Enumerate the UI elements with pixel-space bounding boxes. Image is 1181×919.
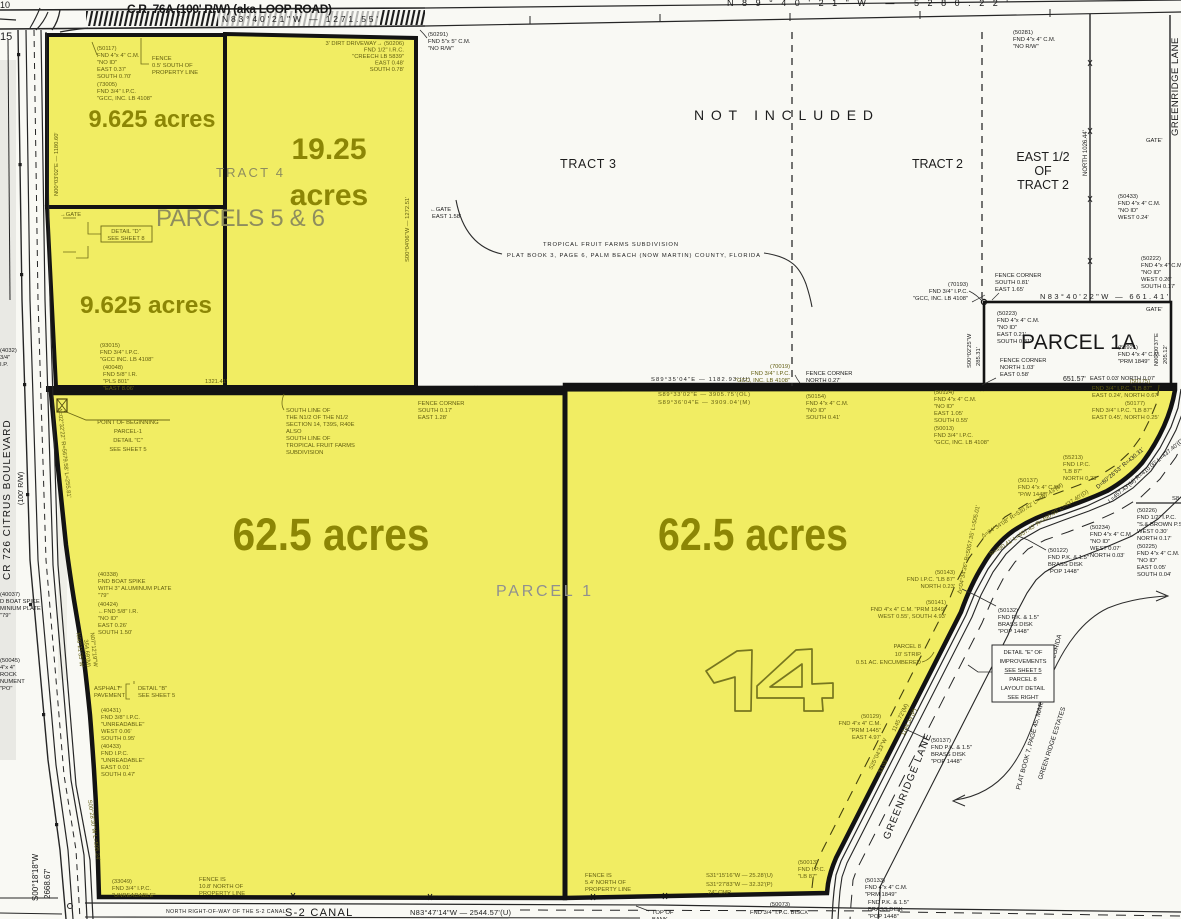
svg-text:205.12': 205.12'	[1163, 345, 1169, 364]
svg-text:1321.41': 1321.41'	[205, 379, 227, 385]
svg-text:FENCE IS: FENCE IS	[199, 877, 226, 883]
svg-text:FND 4"x 4" C.M.: FND 4"x 4" C.M.	[1118, 201, 1161, 207]
svg-text:S31°15'16"W — 25.28'(U): S31°15'16"W — 25.28'(U)	[706, 873, 773, 879]
svg-text:"NO ID": "NO ID"	[97, 60, 117, 66]
svg-text:SOUTH LINE OF: SOUTH LINE OF	[286, 436, 331, 442]
svg-text:"POP 1448": "POP 1448"	[998, 629, 1029, 635]
svg-text:EAST 0.26': EAST 0.26'	[98, 623, 127, 629]
svg-text:19.25: 19.25	[291, 133, 366, 166]
svg-text:FND 3/4" I.P.C.: FND 3/4" I.P.C.	[934, 433, 973, 439]
svg-text:←FND 5/8" I.R.: ←FND 5/8" I.R.	[98, 609, 138, 615]
svg-text:FND 3/4" I.P.C.: FND 3/4" I.P.C.	[100, 350, 139, 356]
svg-text:10' STRIP: 10' STRIP	[895, 652, 921, 658]
svg-text:OF: OF	[1034, 164, 1052, 178]
svg-text:BRASS DISK: BRASS DISK	[998, 622, 1033, 628]
svg-text:"S.& BROWN P.S.M.": "S.& BROWN P.S.M."	[1137, 522, 1181, 528]
svg-text:TOP OF: TOP OF	[652, 910, 674, 916]
svg-text:EAST 0.45', NORTH 0.25': EAST 0.45', NORTH 0.25'	[1092, 415, 1159, 421]
svg-text:(50137): (50137)	[1018, 478, 1038, 484]
svg-text:(40338): (40338)	[98, 572, 118, 578]
svg-text:"LB 87": "LB 87"	[798, 874, 817, 880]
svg-text:FND 4"x 4" C.M. "PRM 1849": FND 4"x 4" C.M. "PRM 1849"	[870, 607, 946, 613]
svg-text:(50921): (50921)	[1118, 345, 1138, 351]
svg-text:5.4' NORTH OF: 5.4' NORTH OF	[585, 880, 626, 886]
svg-text:EAST 0.03' NORTH 0.07': EAST 0.03' NORTH 0.07'	[1090, 376, 1155, 382]
svg-text:3/4": 3/4"	[0, 355, 10, 361]
svg-text:EAST 1/2: EAST 1/2	[1016, 150, 1069, 164]
svg-text:"CREECH LB 5839": "CREECH LB 5839"	[352, 54, 404, 60]
svg-text:"POP 1448": "POP 1448"	[1048, 569, 1079, 575]
svg-text:FND 1/2" I.P.C.: FND 1/2" I.P.C.	[1137, 515, 1176, 521]
svg-text:FENCE CORNER: FENCE CORNER	[1000, 358, 1046, 364]
svg-text:TROPICAL FRUIT FARMS SUBDIVISI: TROPICAL FRUIT FARMS SUBDIVISION	[543, 242, 678, 248]
svg-text:SECTION 14, T39S, R40E: SECTION 14, T39S, R40E	[286, 422, 355, 428]
svg-text:FND 4"x 4" C.M.: FND 4"x 4" C.M.	[997, 318, 1040, 324]
svg-text:(50222): (50222)	[1141, 256, 1161, 262]
svg-text:(70193): (70193)	[948, 282, 968, 288]
svg-text:(100' R/W): (100' R/W)	[18, 472, 25, 505]
svg-text:DETAIL "D": DETAIL "D"	[111, 229, 141, 235]
svg-text:WEST 0.24': WEST 0.24'	[1118, 215, 1149, 221]
svg-text:(50143): (50143)	[935, 570, 955, 576]
svg-text:10.8' NORTH OF: 10.8' NORTH OF	[199, 884, 244, 890]
svg-text:S00°02'25"W: S00°02'25"W	[967, 333, 973, 368]
svg-text:FND 3/4" I.P.C. "LB 87": FND 3/4" I.P.C. "LB 87"	[1092, 386, 1152, 392]
svg-text:BRASS DISK: BRASS DISK	[931, 752, 966, 758]
svg-text:"PRM 1445": "PRM 1445"	[849, 728, 881, 734]
svg-text:BRASS DISK: BRASS DISK	[868, 907, 903, 913]
svg-text:FND 4"x 4" C.M.: FND 4"x 4" C.M.	[806, 401, 849, 407]
svg-text:(40048): (40048)	[103, 365, 123, 371]
svg-text:EAST 1.65': EAST 1.65'	[995, 287, 1024, 293]
svg-text:FND 4"x 4" C.M.: FND 4"x 4" C.M.	[865, 885, 908, 891]
svg-text:"GCC, INC. LB 4108": "GCC, INC. LB 4108"	[913, 296, 968, 302]
svg-text:TROPICAL FRUIT FARMS: TROPICAL FRUIT FARMS	[286, 443, 355, 449]
svg-text:(50117): (50117)	[97, 46, 117, 52]
svg-text:NORTH 0.23': NORTH 0.23'	[920, 584, 955, 590]
svg-text:"NO ID": "NO ID"	[98, 616, 118, 622]
svg-text:(50177): (50177)	[1125, 401, 1145, 407]
svg-text:"LB 87": "LB 87"	[1063, 469, 1082, 475]
svg-text:SOUTH 0.17': SOUTH 0.17'	[1141, 284, 1175, 290]
svg-text:651.57': 651.57'	[1063, 376, 1086, 383]
svg-text:"NO ID": "NO ID"	[1118, 208, 1138, 214]
svg-text:EAST 0.37': EAST 0.37'	[97, 67, 126, 73]
svg-text:I.P.: I.P.	[0, 362, 8, 368]
svg-text:WEST 0.06': WEST 0.06'	[101, 729, 132, 735]
svg-text:FND I.P.C. "LB 87": FND I.P.C. "LB 87"	[907, 577, 955, 583]
svg-text:(40037): (40037)	[0, 592, 20, 598]
svg-text:"NO ID": "NO ID"	[806, 408, 826, 414]
svg-text:9.625 acres: 9.625 acres	[80, 292, 212, 319]
svg-text:(93015): (93015)	[100, 343, 120, 349]
svg-text:EAST 1.05': EAST 1.05'	[934, 411, 963, 417]
svg-text:SOUTH 0.81': SOUTH 0.81'	[995, 280, 1029, 286]
svg-text:(55213): (55213)	[1063, 455, 1083, 461]
svg-text:PARCEL 1: PARCEL 1	[496, 583, 593, 600]
svg-text:THE N1/2 OF THE N1/2: THE N1/2 OF THE N1/2	[286, 415, 348, 421]
svg-text:EAST 0.01': EAST 0.01'	[101, 765, 130, 771]
svg-text:(50132): (50132)	[998, 608, 1018, 614]
svg-text:TRACT 2: TRACT 2	[1017, 178, 1069, 192]
svg-text:(50234): (50234)	[1090, 525, 1110, 531]
svg-text:N83°47'14"W — 2544.57'(U): N83°47'14"W — 2544.57'(U)	[410, 908, 512, 917]
svg-text:EAST 4.97': EAST 4.97'	[852, 735, 881, 741]
svg-text:"PLS 801": "PLS 801"	[103, 379, 129, 385]
svg-text:FND I.P.C.: FND I.P.C.	[798, 867, 826, 873]
svg-text:FND 3/4" I.P.C.: FND 3/4" I.P.C.	[929, 289, 968, 295]
svg-text:(50225): (50225)	[1137, 544, 1157, 550]
svg-text:SEE SHEET 8: SEE SHEET 8	[107, 236, 144, 242]
svg-text:0.51 AC. ENCUMBERED: 0.51 AC. ENCUMBERED	[856, 660, 921, 666]
svg-text:PARCEL-1: PARCEL-1	[114, 429, 142, 435]
svg-text:"NO ID": "NO ID"	[1137, 558, 1157, 564]
svg-text:FND P.K. & 1.5": FND P.K. & 1.5"	[998, 615, 1039, 621]
svg-text:(40424): (40424)	[98, 602, 118, 608]
svg-text:SOUTH 0.55': SOUTH 0.55'	[934, 418, 968, 424]
svg-text:FND 3/4" I.P.C. "LB 87": FND 3/4" I.P.C. "LB 87"	[1092, 408, 1152, 414]
svg-text:S89°33'02"E — 3905.75'(OL): S89°33'02"E — 3905.75'(OL)	[658, 392, 750, 398]
svg-text:DETAIL "B": DETAIL "B"	[138, 686, 167, 692]
svg-text:"NO R/W": "NO R/W"	[428, 46, 454, 52]
svg-text:FND 5/8" I.R.: FND 5/8" I.R.	[103, 372, 138, 378]
svg-text:POINT OF BEGINNING: POINT OF BEGINNING	[97, 420, 159, 426]
svg-text:FENCE CORNER: FENCE CORNER	[806, 371, 852, 377]
svg-text:TRACT 3: TRACT 3	[560, 157, 618, 171]
svg-text:(50137): (50137)	[931, 738, 951, 744]
svg-text:9.625 acres: 9.625 acres	[89, 106, 216, 133]
svg-text:2668.67': 2668.67'	[43, 868, 52, 899]
svg-text:SEE RIGHT: SEE RIGHT	[1007, 695, 1039, 701]
svg-text:SOUTH 0.70': SOUTH 0.70'	[97, 74, 131, 80]
svg-text:DETAIL "E" OF: DETAIL "E" OF	[1004, 650, 1043, 656]
svg-text:15: 15	[0, 31, 12, 43]
svg-text:WEST 0.26': WEST 0.26'	[1141, 277, 1172, 283]
svg-text:(50223): (50223)	[997, 311, 1017, 317]
svg-text:SUBDIVISION: SUBDIVISION	[286, 450, 323, 456]
svg-text:SEE SHEET 5: SEE SHEET 5	[1004, 668, 1041, 674]
svg-text:SOUTH 0.41': SOUTH 0.41'	[806, 415, 840, 421]
svg-text:(50129): (50129)	[861, 714, 881, 720]
svg-text:LAYOUT DETAIL: LAYOUT DETAIL	[1001, 686, 1046, 692]
svg-text:62.5 acres: 62.5 acres	[658, 509, 848, 560]
svg-text:S00°04'06"W — 1272.51': S00°04'06"W — 1272.51'	[405, 197, 411, 262]
svg-text:NORTH 0.03': NORTH 0.03'	[1090, 553, 1125, 559]
svg-text:PARCEL 8: PARCEL 8	[1009, 677, 1036, 683]
svg-text:(50281): (50281)	[1013, 30, 1033, 36]
svg-text:NORTH 0.23': NORTH 0.23'	[1063, 476, 1098, 482]
svg-text:PROPERTY LINE: PROPERTY LINE	[199, 891, 245, 897]
svg-text:FND 4"x 4" C.M.: FND 4"x 4" C.M.	[1141, 263, 1181, 269]
svg-text:ASPHALT: ASPHALT	[94, 686, 120, 692]
svg-text:3' DIRT DRIVEWAY→ (50206): 3' DIRT DRIVEWAY→ (50206)	[325, 41, 404, 47]
svg-text:(50124): (50124)	[934, 390, 954, 396]
svg-text:FENCE: FENCE	[152, 56, 172, 62]
svg-text:SOUTH LINE OF: SOUTH LINE OF	[286, 408, 331, 414]
svg-text:"NO ID": "NO ID"	[1090, 539, 1110, 545]
svg-text:"NO ID": "NO ID"	[1141, 270, 1161, 276]
svg-text:FND 4"x 4" C.M.: FND 4"x 4" C.M.	[1013, 37, 1056, 43]
svg-text:FND I.P.C.: FND I.P.C.	[1063, 462, 1091, 468]
svg-text:SOUTH 0.95': SOUTH 0.95'	[101, 736, 135, 742]
svg-text:"NO ID": "NO ID"	[934, 404, 954, 410]
svg-text:SOUTH 0.31': SOUTH 0.31'	[997, 339, 1031, 345]
svg-text:EAST 1.28': EAST 1.28'	[418, 415, 447, 421]
svg-text:D BOAT SPIKE: D BOAT SPIKE	[0, 599, 40, 605]
svg-text:→GATE: →GATE	[60, 212, 81, 218]
svg-text:(70019): (70019)	[770, 364, 790, 370]
svg-text:PROPERTY LINE: PROPERTY LINE	[152, 70, 198, 76]
svg-text:24" CMP: 24" CMP	[708, 890, 731, 896]
svg-text:SOUTH 0.47': SOUTH 0.47'	[101, 772, 135, 778]
svg-text:"79": "79"	[0, 613, 11, 619]
svg-text:FND BOAT SPIKE: FND BOAT SPIKE	[98, 579, 146, 585]
svg-text:FND 1/2" I.R.C.: FND 1/2" I.R.C.	[364, 48, 404, 54]
svg-text:FND 4"x 4" C.M.: FND 4"x 4" C.M.	[839, 721, 882, 727]
svg-text:SOUTH 0.17': SOUTH 0.17'	[418, 408, 452, 414]
svg-text:EAST 0.24', NORTH 0.67': EAST 0.24', NORTH 0.67'	[1092, 393, 1159, 399]
svg-text:EAST 0.05': EAST 0.05'	[1137, 565, 1166, 571]
svg-text:NOT INCLUDED: NOT INCLUDED	[694, 107, 879, 123]
svg-text:"PRM 1849": "PRM 1849"	[865, 892, 897, 898]
svg-text:"GCC, INC. LB 4108": "GCC, INC. LB 4108"	[97, 96, 152, 102]
svg-text:(50154): (50154)	[806, 394, 826, 400]
svg-text:(50226): (50226)	[1137, 508, 1157, 514]
svg-text:FND P.K. & 1.5": FND P.K. & 1.5"	[931, 745, 972, 751]
svg-text:WEST 0.07': WEST 0.07'	[1090, 546, 1121, 552]
svg-text:10: 10	[0, 0, 10, 10]
svg-text:(50122): (50122)	[1048, 548, 1068, 554]
svg-text:(50045): (50045)	[0, 658, 20, 664]
svg-text:N00°03'02"E — 1180.60': N00°03'02"E — 1180.60'	[54, 132, 60, 196]
svg-text:WEST 0.55', SOUTH 4.93': WEST 0.55', SOUTH 4.93'	[878, 614, 946, 620]
svg-text:S8: S8	[1172, 496, 1179, 502]
svg-text:SEE SHEET 5: SEE SHEET 5	[138, 693, 175, 699]
svg-text:"EAST 8.06': "EAST 8.06'	[103, 386, 134, 392]
svg-text:NORTH 1.03': NORTH 1.03'	[1000, 365, 1035, 371]
svg-text:FND 4"x 4" C.M.: FND 4"x 4" C.M.	[1137, 551, 1180, 557]
svg-text:(50013): (50013)	[934, 426, 954, 432]
svg-text:FND 4"x 4" C.M.: FND 4"x 4" C.M.	[1090, 532, 1133, 538]
svg-text:4"x 4": 4"x 4"	[0, 665, 15, 671]
svg-text:NORTH 0.17': NORTH 0.17'	[1137, 536, 1172, 542]
svg-text:PARCEL 8: PARCEL 8	[894, 644, 921, 650]
svg-text:NORTH RIGHT-OF-WAY OF THE S-2: NORTH RIGHT-OF-WAY OF THE S-2 CANAL	[166, 909, 286, 915]
svg-text:(40433): (40433)	[101, 744, 121, 750]
svg-text:FND 3/4" I.P.C.: FND 3/4" I.P.C.	[112, 886, 151, 892]
svg-text:S00°18'18"W: S00°18'18"W	[31, 853, 40, 901]
svg-text:(50291): (50291)	[428, 32, 448, 38]
svg-text:MINIUM PLATE: MINIUM PLATE	[0, 606, 41, 612]
svg-text:acres: acres	[290, 179, 368, 212]
svg-text:NORTH 0.27': NORTH 0.27'	[806, 378, 841, 384]
svg-text:(40431): (40431)	[101, 708, 121, 714]
svg-text:"79": "79"	[98, 593, 109, 599]
svg-text:WEST 0.30': WEST 0.30'	[1137, 529, 1168, 535]
svg-text:FND 3/4" I.P.C.: FND 3/4" I.P.C.	[751, 371, 790, 377]
svg-text:FENCE CORNER: FENCE CORNER	[995, 273, 1041, 279]
svg-text:FND I.P.C.: FND I.P.C.	[101, 751, 129, 757]
svg-text:"GCC, INC. LB 4108": "GCC, INC. LB 4108"	[735, 378, 790, 384]
svg-text:NUMENT: NUMENT	[0, 679, 25, 685]
svg-text:N00°00'37"E: N00°00'37"E	[1154, 333, 1160, 366]
svg-text:PLAT BOOK 3, PAGE 6, PALM BEAC: PLAT BOOK 3, PAGE 6, PALM BEACH (NOW MAR…	[507, 253, 760, 259]
svg-text:FENCE IS: FENCE IS	[585, 873, 612, 879]
svg-text:GATE': GATE'	[1146, 307, 1162, 313]
svg-text:EAST 0.21': EAST 0.21'	[997, 332, 1026, 338]
svg-text:(4032): (4032)	[0, 348, 17, 354]
svg-text:WITH 3" ALUMINUM PLATE: WITH 3" ALUMINUM PLATE	[98, 586, 172, 592]
svg-text:(50013): (50013)	[798, 860, 818, 866]
svg-text:(73005): (73005)	[97, 82, 117, 88]
svg-text:SEE SHEET 5: SEE SHEET 5	[109, 447, 146, 453]
svg-text:FND 4"x 4" C.M.: FND 4"x 4" C.M.	[97, 53, 140, 59]
svg-text:FND 5"x 5" C.M.: FND 5"x 5" C.M.	[428, 39, 471, 45]
svg-text:DETAIL "C": DETAIL "C"	[113, 438, 143, 444]
svg-text:S31°27'83"W — 32.32'(P): S31°27'83"W — 32.32'(P)	[706, 882, 773, 888]
svg-text:SOUTH 1.50': SOUTH 1.50'	[98, 630, 132, 636]
svg-text:C.R. 76A (100' R/W) (aka LOOP: C.R. 76A (100' R/W) (aka LOOP ROAD)	[127, 2, 332, 16]
svg-text:FND P.K. & 1.5": FND P.K. & 1.5"	[868, 900, 909, 906]
svg-text:S89°36'04"E — 3909.04'(M): S89°36'04"E — 3909.04'(M)	[658, 400, 750, 406]
svg-text:NORTH 1026.44': NORTH 1026.44'	[1083, 130, 1089, 176]
svg-text:EAST 0.58': EAST 0.58'	[1000, 372, 1029, 378]
svg-text:(50433): (50433)	[1118, 194, 1138, 200]
svg-text:←GATE: ←GATE	[430, 207, 451, 213]
svg-text:TRACT 2: TRACT 2	[912, 157, 965, 171]
svg-text:(33049): (33049)	[112, 879, 132, 885]
svg-text:FND 4"x 4" C.M.: FND 4"x 4" C.M.	[934, 397, 977, 403]
svg-text:"NO R/W": "NO R/W"	[1013, 44, 1039, 50]
svg-text:PROPERTY LINE: PROPERTY LINE	[585, 887, 631, 893]
svg-text:(50133): (50133)	[865, 878, 885, 884]
svg-text:FND P.K. & 1.5": FND P.K. & 1.5"	[1048, 555, 1089, 561]
svg-text:TRACT 4: TRACT 4	[216, 165, 286, 180]
svg-text:ROCK: ROCK	[0, 672, 17, 678]
svg-text:0.5' SOUTH OF: 0.5' SOUTH OF	[152, 63, 193, 69]
svg-text:(50141): (50141)	[926, 600, 946, 606]
svg-text:"GCC, INC. LB 4108": "GCC, INC. LB 4108"	[934, 440, 989, 446]
svg-text:"PRM 1849": "PRM 1849"	[1118, 359, 1150, 365]
svg-text:(50073): (50073)	[770, 902, 790, 908]
svg-text:"POP 1448": "POP 1448"	[868, 914, 899, 919]
svg-text:"GCC INC. LB 4108": "GCC INC. LB 4108"	[100, 357, 153, 363]
svg-text:CR 726 CITRUS BOULEVARD: CR 726 CITRUS BOULEVARD	[2, 419, 13, 580]
svg-text:"POP 1448": "POP 1448"	[931, 759, 962, 765]
svg-text:FND 3/8" I.P.C.: FND 3/8" I.P.C.	[101, 715, 140, 721]
svg-text:FND 3/4" I.P.C.: FND 3/4" I.P.C.	[97, 89, 136, 95]
svg-text:62.5 acres: 62.5 acres	[233, 509, 430, 560]
svg-text:GATE': GATE'	[1146, 138, 1162, 144]
svg-text:FENCE CORNER: FENCE CORNER	[418, 401, 464, 407]
svg-text:"NO ID": "NO ID"	[997, 325, 1017, 331]
svg-text:285.31': 285.31'	[976, 347, 982, 366]
svg-text:S-2 CANAL: S-2 CANAL	[285, 907, 354, 919]
svg-text:SOUTH 0.78': SOUTH 0.78'	[370, 67, 404, 73]
svg-text:FND 3/4" I.P.C. BISCX: FND 3/4" I.P.C. BISCX	[750, 910, 808, 916]
svg-text:SOUTH 0.04': SOUTH 0.04'	[1137, 572, 1171, 578]
svg-text:BRASS DISK: BRASS DISK	[1048, 562, 1083, 568]
svg-text:GREENRIDGE LANE: GREENRIDGE LANE	[1170, 37, 1181, 136]
svg-text:"PO": "PO"	[0, 686, 13, 692]
svg-text:EAST 1.58': EAST 1.58'	[432, 214, 461, 220]
svg-text:"UNREADABLE": "UNREADABLE"	[112, 893, 155, 899]
svg-text:"UNREADABLE": "UNREADABLE"	[101, 758, 144, 764]
svg-text:EAST 0.48': EAST 0.48'	[375, 61, 404, 67]
svg-text:PAVEMENT: PAVEMENT	[94, 693, 125, 699]
svg-text:ALSO: ALSO	[286, 429, 302, 435]
svg-text:"UNREADABLE": "UNREADABLE"	[101, 722, 144, 728]
svg-text:IMPROVEMENTS: IMPROVEMENTS	[999, 659, 1046, 665]
